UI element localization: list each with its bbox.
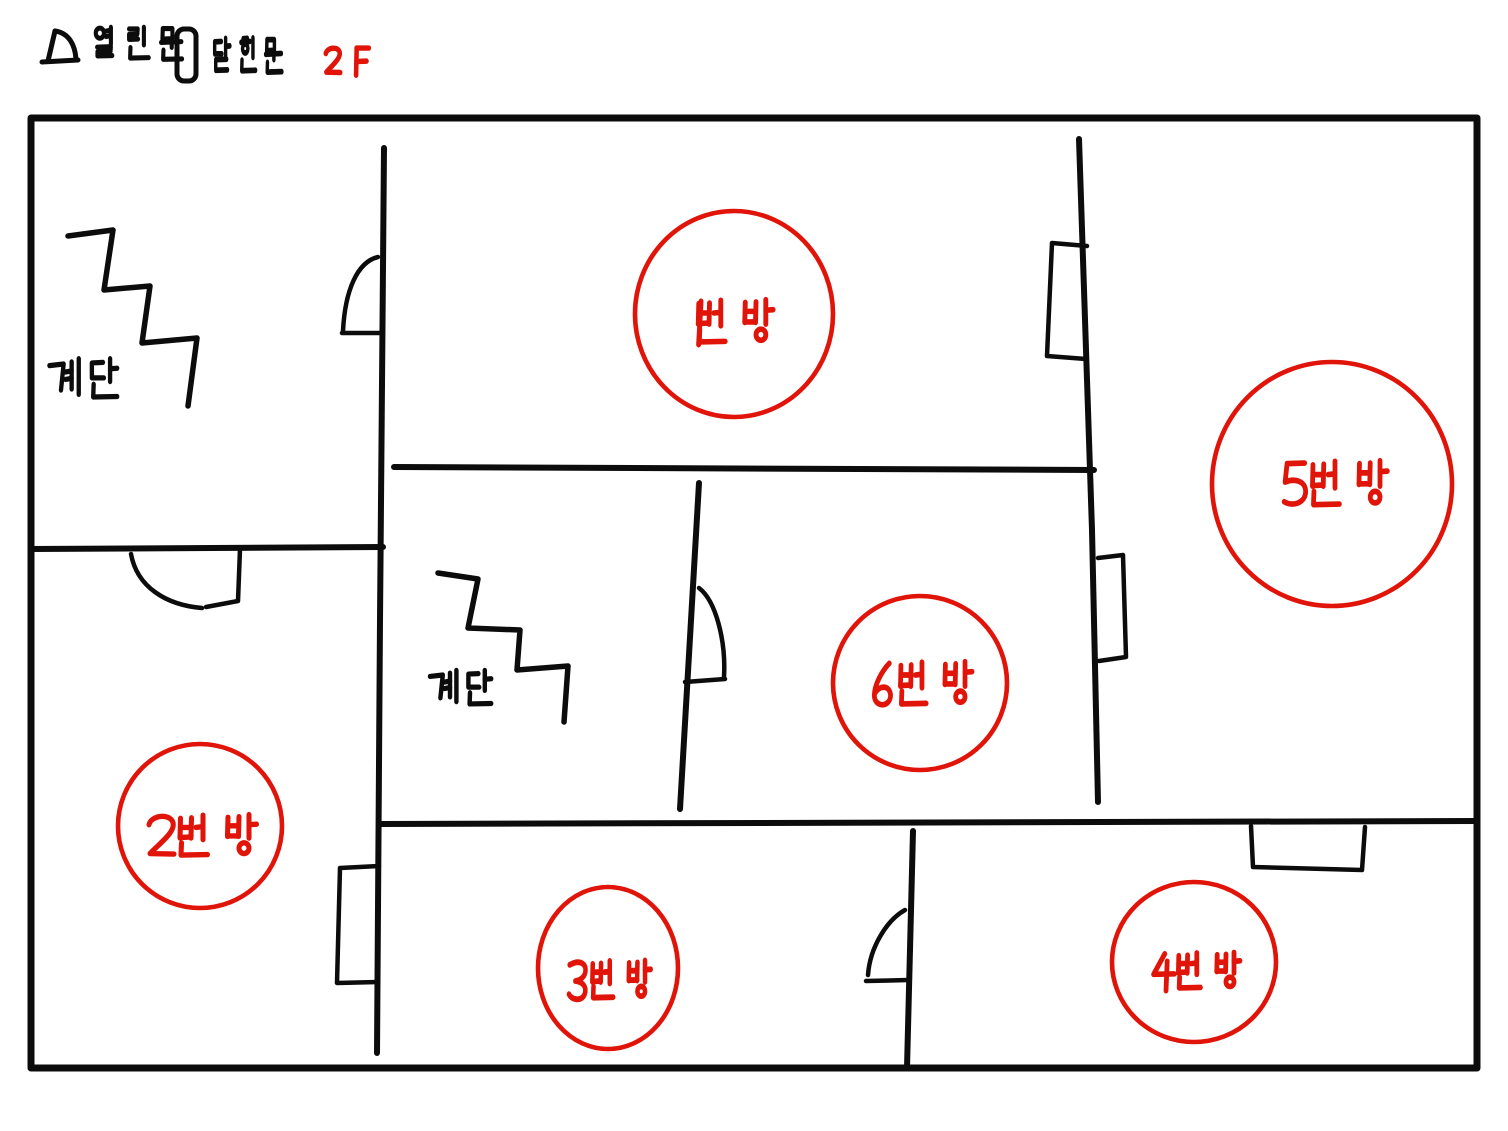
glyph-4 bbox=[1154, 954, 1175, 991]
door-room1-to-stairs bbox=[342, 257, 381, 333]
floorplan-2f bbox=[0, 0, 1508, 1131]
walls bbox=[31, 139, 1476, 1068]
door-room3-room4-swing-arc bbox=[868, 910, 905, 975]
door-room4-top-closed bbox=[1251, 826, 1365, 870]
glyph-계 bbox=[430, 670, 456, 701]
door-room2-closed-panel bbox=[337, 866, 379, 983]
glyph-번 bbox=[1312, 461, 1339, 504]
door-room5-lower-closed bbox=[1098, 555, 1126, 661]
room-1 bbox=[635, 211, 833, 417]
room-2 bbox=[118, 744, 282, 908]
rooms bbox=[118, 211, 1452, 1049]
doors bbox=[131, 243, 1365, 983]
door-room2-closed bbox=[337, 866, 379, 983]
floor-label bbox=[326, 48, 369, 75]
wall-hall-mid-slant bbox=[680, 483, 699, 809]
room-5-circle bbox=[1212, 362, 1452, 606]
glyph-방 bbox=[629, 960, 651, 996]
wall-hallway-top bbox=[394, 467, 1094, 470]
open-door-label bbox=[96, 27, 182, 59]
room-4-label bbox=[1154, 952, 1240, 990]
door-hallway-mid-swing-arc bbox=[699, 588, 724, 677]
wall-main-vertical bbox=[377, 148, 384, 1053]
glyph-린 bbox=[129, 27, 149, 58]
door-room3-room4-leaf bbox=[866, 980, 909, 981]
room-6-label bbox=[874, 662, 972, 705]
glyph-문 bbox=[266, 40, 282, 72]
glyph-방 bbox=[1217, 952, 1240, 986]
glyph-힌 bbox=[241, 38, 256, 71]
glyph-방 bbox=[1359, 461, 1387, 503]
stairs-upper-left bbox=[49, 230, 197, 406]
building-outline bbox=[31, 118, 1477, 1068]
closed-door-icon bbox=[177, 29, 196, 81]
glyph-방 bbox=[945, 662, 972, 703]
room-1-label bbox=[698, 300, 773, 345]
glyph-방 bbox=[228, 815, 257, 854]
glyph-3 bbox=[569, 962, 586, 999]
door-room2-top bbox=[131, 549, 240, 608]
door-room3-room4 bbox=[866, 910, 909, 981]
glyph-번 bbox=[900, 662, 926, 704]
glyph-2 bbox=[149, 816, 174, 854]
legend bbox=[42, 27, 369, 81]
glyph-번 bbox=[180, 815, 208, 855]
room-6 bbox=[833, 596, 1007, 770]
room-2-label bbox=[149, 815, 257, 856]
room-5 bbox=[1212, 362, 1452, 606]
room-5-label bbox=[1284, 461, 1387, 505]
open-door-icon bbox=[42, 31, 78, 62]
stairs-middle-label bbox=[430, 670, 491, 704]
room-3-label bbox=[569, 960, 651, 999]
door-room4-top-closed-panel bbox=[1251, 826, 1365, 870]
door-room2-top-swing-arc bbox=[131, 554, 202, 608]
room-1-circle bbox=[635, 211, 833, 417]
glyph-5 bbox=[1284, 463, 1306, 504]
wall-lower-corridor bbox=[382, 821, 1476, 824]
floorplan-drawing bbox=[0, 0, 1508, 1131]
stairs-upper-left-zigzag bbox=[68, 230, 197, 406]
wall-room34-divider bbox=[907, 831, 913, 1068]
door-hallway-mid-leaf bbox=[685, 679, 725, 682]
glyph-방 bbox=[745, 300, 773, 341]
glyph-F bbox=[356, 48, 369, 75]
glyph-번 bbox=[592, 961, 613, 998]
door-room2-top-leaf bbox=[206, 549, 240, 607]
glyph-6 bbox=[874, 663, 890, 704]
closed-door-label bbox=[215, 38, 282, 72]
door-room1-to-stairs-swing-arc bbox=[343, 257, 378, 331]
room-3 bbox=[538, 887, 678, 1049]
stairs-upper-left-label bbox=[49, 359, 117, 397]
glyph-단 bbox=[468, 670, 491, 704]
glyph-닫 bbox=[215, 38, 230, 70]
glyph-2 bbox=[326, 48, 340, 72]
glyph-단 bbox=[92, 359, 117, 397]
glyph-계 bbox=[49, 359, 78, 395]
glyph-번 bbox=[1178, 953, 1200, 988]
room-4 bbox=[1112, 882, 1276, 1042]
glyph-열 bbox=[96, 27, 113, 56]
wall-stairs-room-bottom bbox=[31, 547, 383, 549]
stairs-middle bbox=[430, 573, 568, 722]
door-room5-lower-closed-panel bbox=[1098, 555, 1126, 661]
